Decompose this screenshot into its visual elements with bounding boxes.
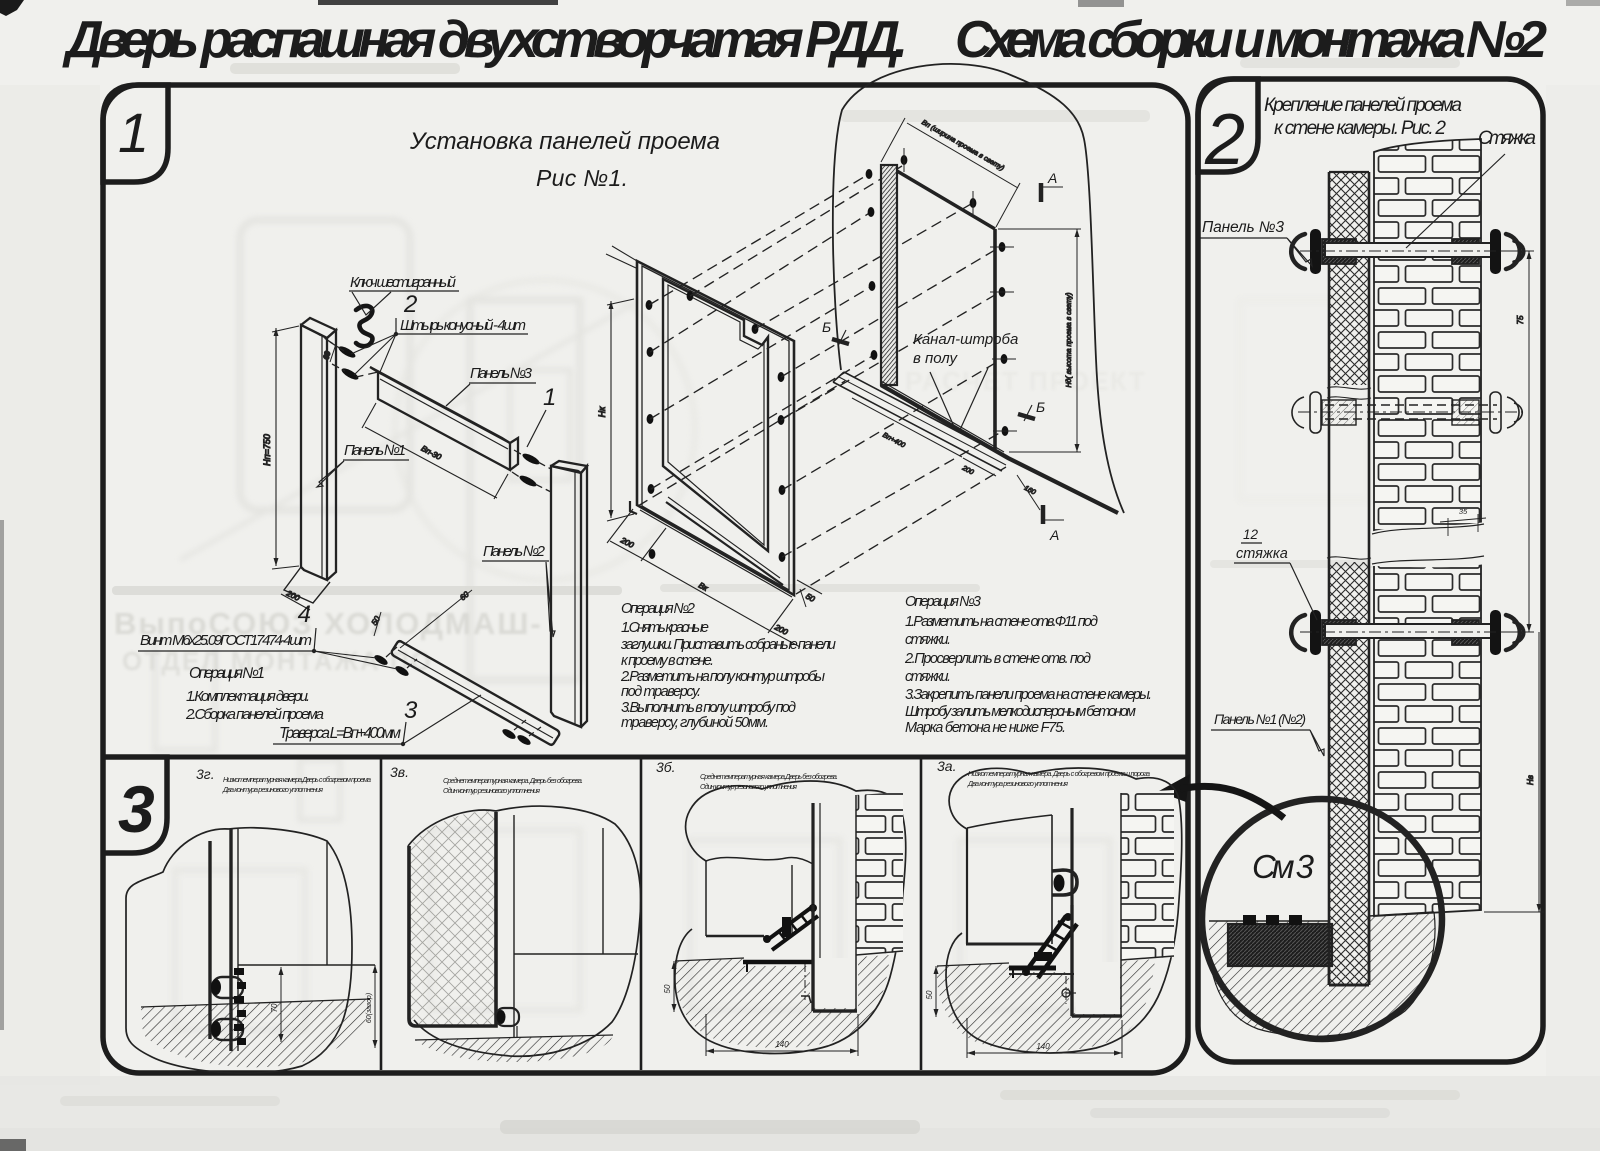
svg-text:Винт М6х25.09ГОСТ17474-4шт: Винт М6х25.09ГОСТ17474-4шт (140, 632, 312, 649)
svg-text:траверсу, глубиной 50мм.: траверсу, глубиной 50мм. (621, 715, 769, 731)
svg-text:Низкотемпературная камера.Двер: Низкотемпературная камера.Дверь с обогре… (223, 775, 371, 784)
svg-text:под траверсу.: под траверсу. (621, 684, 701, 700)
svg-text:Операция №1: Операция №1 (189, 665, 265, 682)
svg-text:Дверь распашная двухстворчатая: Дверь распашная двухстворчатая РДД. (62, 11, 908, 69)
svg-text:3.Выполнить в полу штробу под: 3.Выполнить в полу штробу под (621, 700, 796, 716)
svg-text:3в.: 3в. (390, 764, 409, 780)
svg-text:стяжки.: стяжки. (905, 632, 951, 648)
svg-text:Операция №2: Операция №2 (621, 601, 695, 617)
svg-text:4: 4 (298, 601, 311, 628)
svg-text:50: 50 (663, 984, 672, 993)
svg-text:Нп=750: Нп=750 (262, 434, 272, 466)
svg-text:35: 35 (1459, 507, 1468, 516)
svg-text:Стяжка: Стяжка (1478, 128, 1536, 149)
svg-text:Крепление панелей проема: Крепление панелей проема (1264, 95, 1462, 116)
svg-text:Нк: Нк (597, 406, 607, 417)
svg-text:Канал-штроба: Канал-штроба (913, 331, 1018, 348)
svg-text:3.Закрепить панели проема на с: 3.Закрепить панели проема на стене камер… (905, 687, 1152, 703)
svg-text:Ключ шестигранный: Ключ шестигранный (350, 274, 457, 291)
svg-text:Панель №2: Панель №2 (483, 543, 546, 560)
svg-text:2: 2 (403, 291, 417, 318)
svg-text:60(зазор): 60(зазор) (366, 993, 373, 1023)
svg-text:См 3: См 3 (1252, 848, 1315, 885)
svg-text:Среднетемпературная камера. Дв: Среднетемпературная камера. Дверь без об… (443, 776, 583, 785)
svg-text:Нв: Нв (1526, 775, 1535, 785)
svg-text:Рис №1.: Рис №1. (536, 165, 628, 191)
svg-text:Панель №1: Панель №1 (344, 442, 406, 459)
svg-text:Б: Б (822, 319, 831, 335)
svg-text:3: 3 (404, 697, 418, 724)
svg-text:Панель №3: Панель №3 (470, 365, 533, 382)
svg-text:1.Снять красные: 1.Снять красные (621, 620, 709, 636)
svg-text:2: 2 (1204, 100, 1245, 180)
svg-text:стяжки.: стяжки. (905, 669, 951, 685)
svg-text:Установка панелей проема: Установка панелей проема (409, 128, 720, 155)
svg-text:Один контур резинового уплотне: Один контур резинового уплотнения (443, 786, 540, 795)
svg-text:12: 12 (1243, 527, 1259, 542)
svg-text:140: 140 (1036, 1042, 1050, 1051)
svg-text:Среднетемпературная камера.Две: Среднетемпературная камера.Дверь без обо… (700, 772, 838, 781)
svg-text:Операция №3: Операция №3 (905, 594, 981, 610)
svg-text:50: 50 (925, 990, 934, 999)
svg-text:2.Просверлить в стене отв.: 2.Просверлить в стене отв. под (904, 651, 1091, 667)
svg-text:2.Сборка панелей проема: 2.Сборка панелей проема (185, 706, 324, 723)
svg-text:Схема сборки и монтажа №2: Схема сборки и монтажа №2 (955, 11, 1547, 69)
svg-text:Два контура резинового уплотне: Два контура резинового уплотнения (222, 785, 323, 794)
svg-text:1: 1 (543, 384, 556, 411)
svg-text:к стене камеры. Рис. 2: к стене камеры. Рис. 2 (1274, 118, 1446, 139)
svg-text:1.Разметить на стене отв.Ф11 п: 1.Разметить на стене отв.Ф11 под (905, 614, 1098, 630)
svg-text:заглушки. Приставить собраные: заглушки. Приставить собраные панели (620, 637, 836, 653)
svg-text:Штробу залить мелкодисперсным: Штробу залить мелкодисперсным бетоном (905, 704, 1136, 720)
svg-text:в полу: в полу (913, 350, 959, 367)
svg-text:3: 3 (118, 772, 155, 846)
svg-text:3а.: 3а. (937, 758, 956, 774)
svg-text:Б: Б (1036, 399, 1045, 415)
svg-text:РАСЧЕТ ПРОЕКТ: РАСЧЕТ ПРОЕКТ (905, 366, 1147, 396)
svg-text:Марка бетона не ниже F75.: Марка бетона не ниже F75. (905, 720, 1066, 736)
svg-text:70: 70 (270, 1003, 279, 1012)
svg-text:Нд( высота проема в свету): Нд( высота проема в свету) (1065, 293, 1073, 388)
svg-text:1.Комплектация двери.: 1.Комплектация двери. (186, 688, 310, 705)
svg-text:3г.: 3г. (196, 766, 215, 782)
svg-text:А: А (1049, 527, 1059, 543)
svg-text:3б.: 3б. (656, 759, 676, 775)
svg-text:Два контура резинового уплотне: Два контура резинового уплотнения (967, 779, 1068, 788)
svg-text:А: А (1047, 170, 1057, 186)
svg-text:Траверса L=Вп+400мм: Траверса L=Вп+400мм (279, 725, 401, 742)
svg-text:1: 1 (118, 101, 149, 164)
svg-text:140: 140 (775, 1040, 789, 1049)
svg-text:стяжка: стяжка (1236, 546, 1288, 562)
svg-text:Штырь конусный - 4шт: Штырь конусный - 4шт (400, 317, 526, 334)
svg-text:Панель №1 (№2): Панель №1 (№2) (1214, 711, 1306, 727)
svg-text:75: 75 (1516, 315, 1525, 324)
svg-text:к проему в стене.: к проему в стене. (621, 653, 714, 669)
svg-text:Панель №3: Панель №3 (1202, 219, 1284, 236)
svg-text:2.Разметить на полу контур штр: 2.Разметить на полу контур штробы (620, 669, 825, 685)
